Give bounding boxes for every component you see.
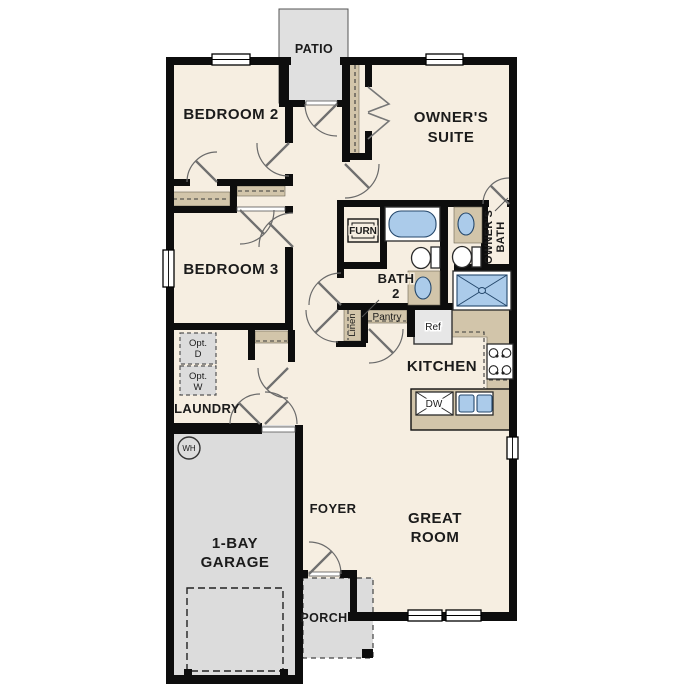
wall-segment bbox=[340, 57, 426, 65]
wall-segment bbox=[248, 330, 255, 360]
wall-segment bbox=[285, 247, 293, 330]
door-threshold bbox=[306, 101, 337, 105]
wall-segment bbox=[166, 206, 237, 213]
patio-label: PATIO bbox=[295, 42, 333, 56]
wall-segment bbox=[463, 57, 517, 65]
wall-segment bbox=[407, 308, 415, 337]
sink-basin bbox=[459, 395, 474, 412]
opt-dryer-label-1: Opt. bbox=[189, 338, 207, 349]
wall-segment bbox=[285, 103, 293, 143]
laundry-label: LAUNDRY bbox=[174, 401, 240, 416]
linen-label: Linen bbox=[347, 313, 358, 336]
opt-dryer-label-2: D bbox=[195, 349, 202, 360]
wall-segment bbox=[280, 669, 288, 676]
wall-segment bbox=[348, 612, 410, 621]
owners-suite-label-1: OWNER'S bbox=[414, 109, 489, 126]
owners-suite-label-2: SUITE bbox=[428, 129, 475, 146]
owners-bath-label-2: BATH bbox=[495, 222, 507, 253]
great-room-label-2: ROOM bbox=[411, 529, 460, 546]
bath2-label-2: 2 bbox=[392, 286, 400, 301]
wall-segment bbox=[166, 323, 290, 330]
bedroom2-label: BEDROOM 2 bbox=[183, 106, 278, 123]
great-room-label-1: GREAT bbox=[408, 510, 462, 527]
floor-plan-svg: PATIO BEDROOM 2 OWNER'S SUITE BEDROOM 3 … bbox=[0, 0, 687, 687]
wall-segment bbox=[336, 341, 366, 347]
wall-segment bbox=[365, 131, 372, 160]
wall-segment bbox=[509, 57, 517, 437]
wall-segment bbox=[295, 425, 303, 678]
garage-label-1: 1-BAY bbox=[212, 535, 258, 552]
wall-segment bbox=[288, 330, 295, 362]
garage-label-2: GARAGE bbox=[201, 554, 270, 571]
dishwasher-label: DW bbox=[426, 399, 443, 410]
toilet-tank bbox=[431, 247, 440, 268]
wall-segment bbox=[166, 423, 262, 434]
porch-post bbox=[362, 649, 373, 658]
door-threshold bbox=[309, 572, 340, 576]
toilet-bowl bbox=[453, 247, 472, 268]
wall-segment bbox=[342, 200, 489, 207]
wall-segment bbox=[480, 612, 517, 621]
owners-closet-shelf bbox=[349, 64, 359, 154]
opt-washer-label-2: W bbox=[194, 382, 203, 393]
wall-segment bbox=[337, 262, 387, 269]
bath2-label-1: BATH bbox=[378, 271, 415, 286]
wall-segment bbox=[166, 287, 174, 684]
kitchen-label: KITCHEN bbox=[407, 358, 477, 375]
opt-washer-label-1: Opt. bbox=[189, 371, 207, 382]
water-heater-label: WH bbox=[182, 444, 196, 453]
wall-segment bbox=[279, 57, 289, 107]
wall-segment bbox=[301, 570, 308, 578]
pantry-label: Pantry bbox=[373, 312, 402, 323]
furnace-label: FURN bbox=[349, 226, 377, 237]
ref-label: Ref bbox=[425, 322, 441, 333]
shower-drain bbox=[479, 288, 486, 294]
wall-segment bbox=[166, 57, 174, 250]
bedroom3-label: BEDROOM 3 bbox=[183, 261, 278, 278]
wall-segment bbox=[342, 57, 350, 162]
sink-basin bbox=[477, 395, 492, 412]
wall-segment bbox=[440, 200, 448, 310]
wall-segment bbox=[166, 675, 303, 684]
owners-bath-label-1: OWNER'S bbox=[483, 210, 495, 264]
toilet-bowl bbox=[412, 248, 431, 269]
wall-segment bbox=[217, 179, 290, 186]
bath2-sink bbox=[415, 277, 431, 299]
patio-floor bbox=[279, 9, 348, 103]
toilet-tank bbox=[472, 247, 481, 267]
floor-plan-page: PATIO BEDROOM 2 OWNER'S SUITE BEDROOM 3 … bbox=[0, 0, 687, 687]
porch-label: PORCH bbox=[300, 611, 347, 625]
wall-segment bbox=[509, 459, 517, 620]
door-threshold bbox=[262, 427, 295, 432]
wall-segment bbox=[184, 669, 192, 676]
door-threshold bbox=[237, 207, 285, 211]
foyer-label: FOYER bbox=[310, 501, 357, 516]
owners-sink bbox=[458, 213, 474, 235]
wall-segment bbox=[361, 308, 368, 343]
wall-segment bbox=[285, 206, 293, 213]
bathtub bbox=[389, 211, 436, 237]
